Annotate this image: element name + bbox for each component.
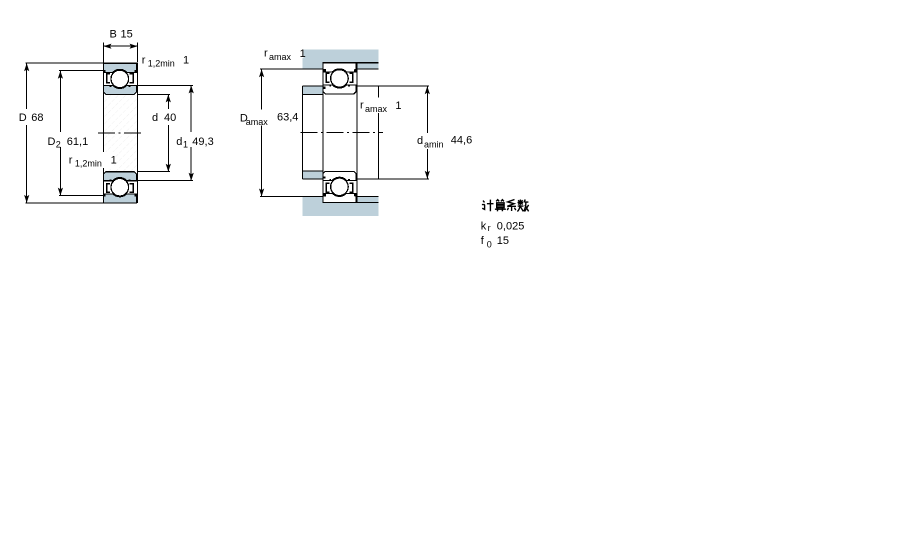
svg-text:2: 2 [56, 140, 61, 150]
svg-text:49,3: 49,3 [192, 136, 213, 148]
svg-text:63,4: 63,4 [277, 112, 298, 124]
svg-text:1: 1 [183, 55, 189, 67]
svg-text:amax: amax [246, 117, 269, 127]
svg-text:r: r [488, 223, 491, 233]
svg-text:D: D [48, 136, 56, 148]
svg-text:B: B [110, 28, 117, 40]
svg-text:d: d [152, 112, 158, 124]
svg-text:r: r [69, 155, 73, 167]
svg-text:15: 15 [497, 235, 509, 247]
svg-text:15: 15 [121, 28, 133, 40]
svg-text:1: 1 [395, 100, 401, 112]
svg-text:d: d [417, 135, 423, 147]
svg-text:r: r [264, 48, 268, 60]
svg-text:0: 0 [487, 240, 492, 250]
svg-text:r: r [142, 55, 146, 67]
svg-text:1: 1 [300, 48, 306, 60]
svg-text:1,2min: 1,2min [148, 58, 175, 68]
svg-text:40: 40 [164, 112, 176, 124]
svg-text:r: r [360, 99, 364, 111]
svg-text:k: k [481, 220, 487, 232]
svg-text:amax: amax [365, 104, 388, 114]
svg-text:1: 1 [111, 155, 117, 167]
svg-text:61,1: 61,1 [67, 136, 88, 148]
svg-text:amax: amax [269, 52, 292, 62]
svg-text:44,6: 44,6 [451, 135, 472, 147]
svg-text:68: 68 [31, 112, 43, 124]
svg-text:d: d [176, 136, 182, 148]
svg-text:1,2min: 1,2min [75, 159, 102, 169]
svg-text:amin: amin [424, 140, 444, 150]
svg-text:1: 1 [183, 140, 188, 150]
svg-text:0,025: 0,025 [497, 220, 525, 232]
svg-text:D: D [19, 112, 27, 124]
